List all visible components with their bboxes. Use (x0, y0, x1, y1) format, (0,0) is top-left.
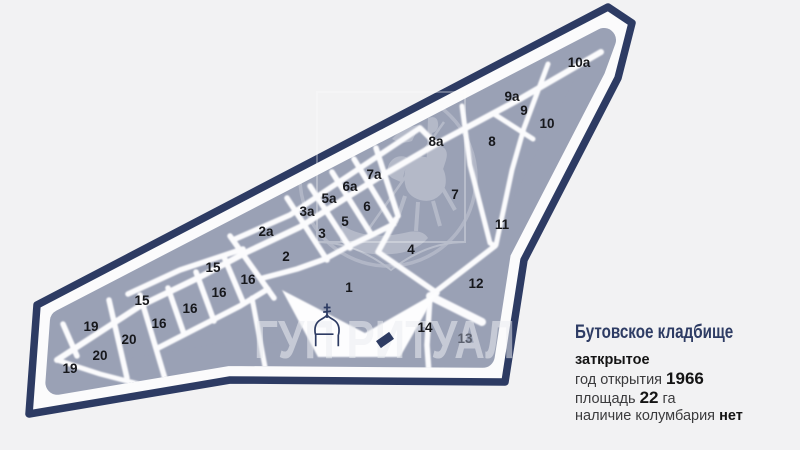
svg-text:7: 7 (451, 187, 459, 202)
svg-text:14: 14 (417, 320, 433, 335)
svg-text:16: 16 (240, 272, 256, 287)
svg-text:2а: 2а (258, 224, 274, 239)
svg-text:16: 16 (211, 285, 227, 300)
svg-text:12: 12 (468, 276, 483, 291)
svg-text:15: 15 (134, 293, 150, 308)
svg-text:1: 1 (345, 280, 353, 295)
svg-text:20: 20 (92, 348, 107, 363)
svg-text:7а: 7а (366, 167, 382, 182)
svg-text:11: 11 (495, 217, 510, 232)
svg-text:16: 16 (151, 316, 167, 331)
svg-text:6: 6 (363, 199, 371, 214)
svg-text:5а: 5а (321, 191, 337, 206)
svg-text:9: 9 (520, 103, 528, 118)
svg-text:9а: 9а (504, 89, 520, 104)
svg-text:19: 19 (83, 319, 98, 334)
svg-text:6а: 6а (342, 179, 358, 194)
svg-text:3а: 3а (299, 204, 315, 219)
svg-text:13: 13 (457, 331, 473, 346)
svg-text:15: 15 (205, 260, 221, 275)
svg-text:20: 20 (121, 332, 136, 347)
svg-text:19: 19 (62, 361, 77, 376)
svg-text:3: 3 (318, 226, 326, 241)
svg-text:2: 2 (282, 249, 290, 264)
svg-text:16: 16 (182, 301, 198, 316)
svg-text:10: 10 (539, 116, 554, 131)
svg-text:8а: 8а (428, 134, 444, 149)
svg-text:5: 5 (341, 214, 349, 229)
svg-text:8: 8 (488, 134, 496, 149)
svg-text:4: 4 (407, 242, 415, 257)
